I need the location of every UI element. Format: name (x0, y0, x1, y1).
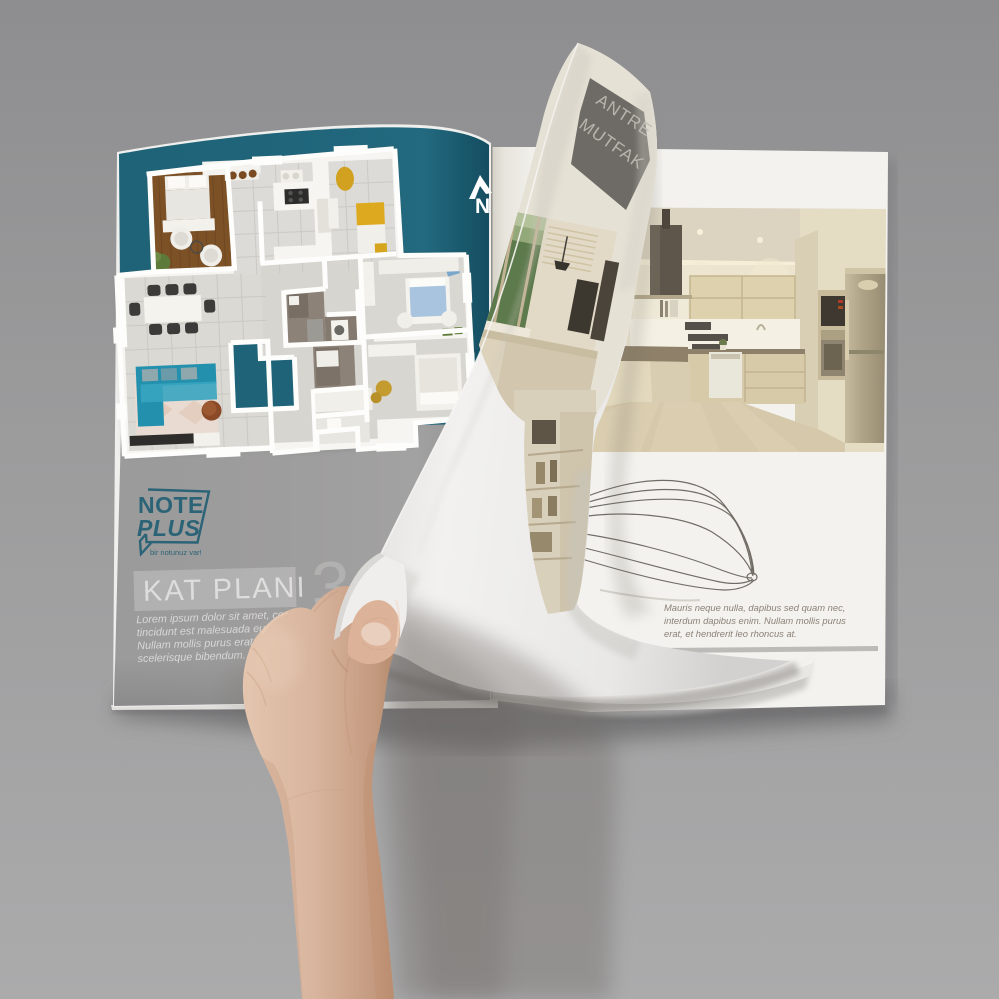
svg-text:bir notunuz var!: bir notunuz var! (150, 548, 202, 557)
svg-text:interdum dapibus enim. Nullam: interdum dapibus enim. Nullam mollis pur… (664, 615, 846, 626)
svg-text:KAT PLANI: KAT PLANI (143, 572, 307, 608)
svg-text:N: N (475, 195, 490, 218)
svg-text:erat, et hendrerit leo rhoncus: erat, et hendrerit leo rhoncus at. (664, 628, 797, 639)
svg-text:Mauris neque nulla, dapibus se: Mauris neque nulla, dapibus sed quam nec… (664, 602, 845, 613)
svg-text:PLUS: PLUS (137, 515, 201, 541)
